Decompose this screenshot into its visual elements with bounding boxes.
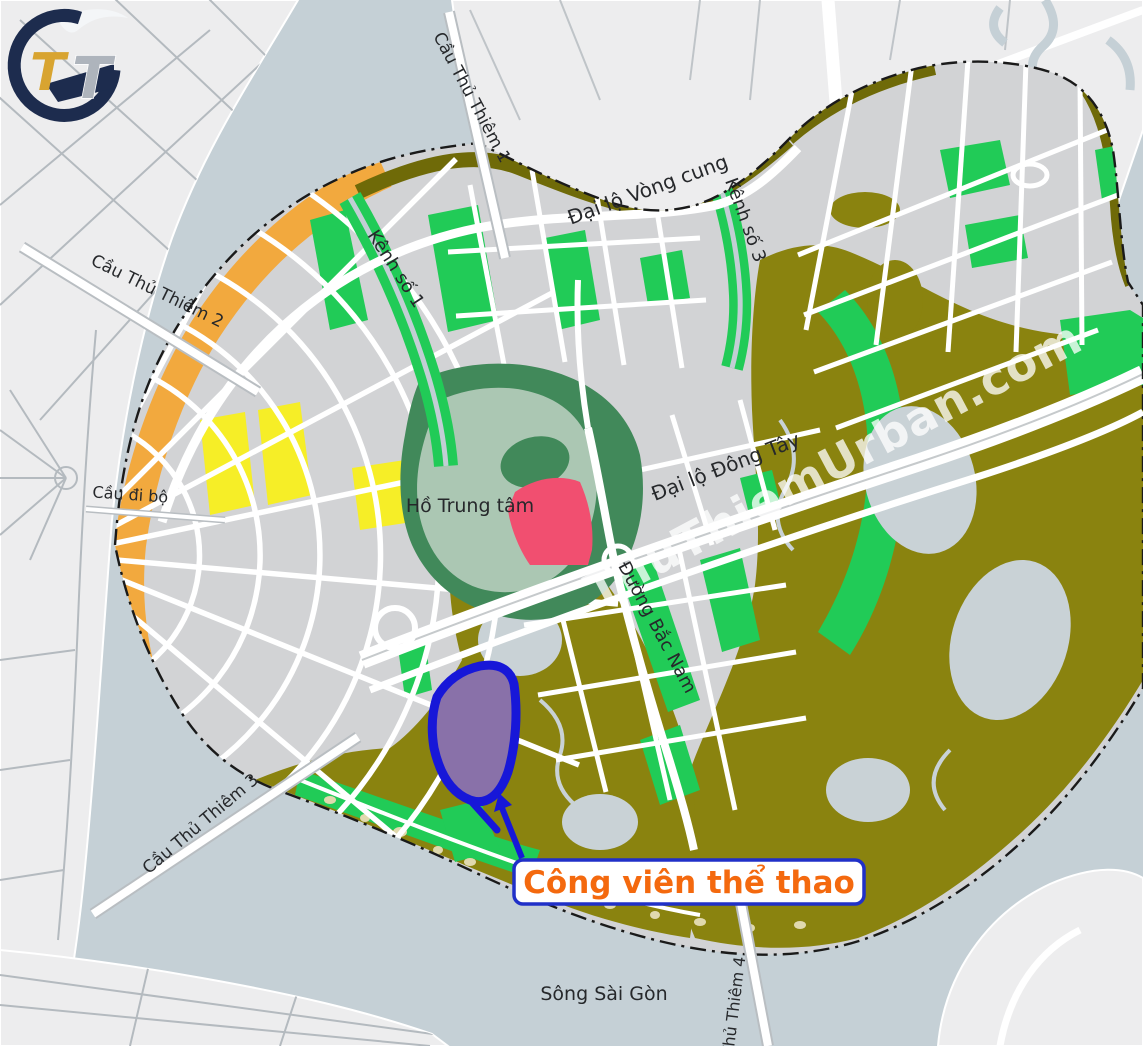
label-saigon-river: Sông Sài Gòn (540, 983, 667, 1005)
logo-letter-silver: T (72, 44, 116, 112)
label-central-lake: Hồ Trung tâm (406, 495, 534, 517)
thu-thiem-planning-map: ThuThiemUrban.com Cầu Thủ Thiêm 1 Cầu Th… (0, 0, 1143, 1046)
map-canvas: ThuThiemUrban.com Cầu Thủ Thiêm 1 Cầu Th… (0, 0, 1143, 1046)
logo-letter-gold: T (30, 43, 69, 103)
callout-label: Công viên thể thao (523, 865, 855, 901)
